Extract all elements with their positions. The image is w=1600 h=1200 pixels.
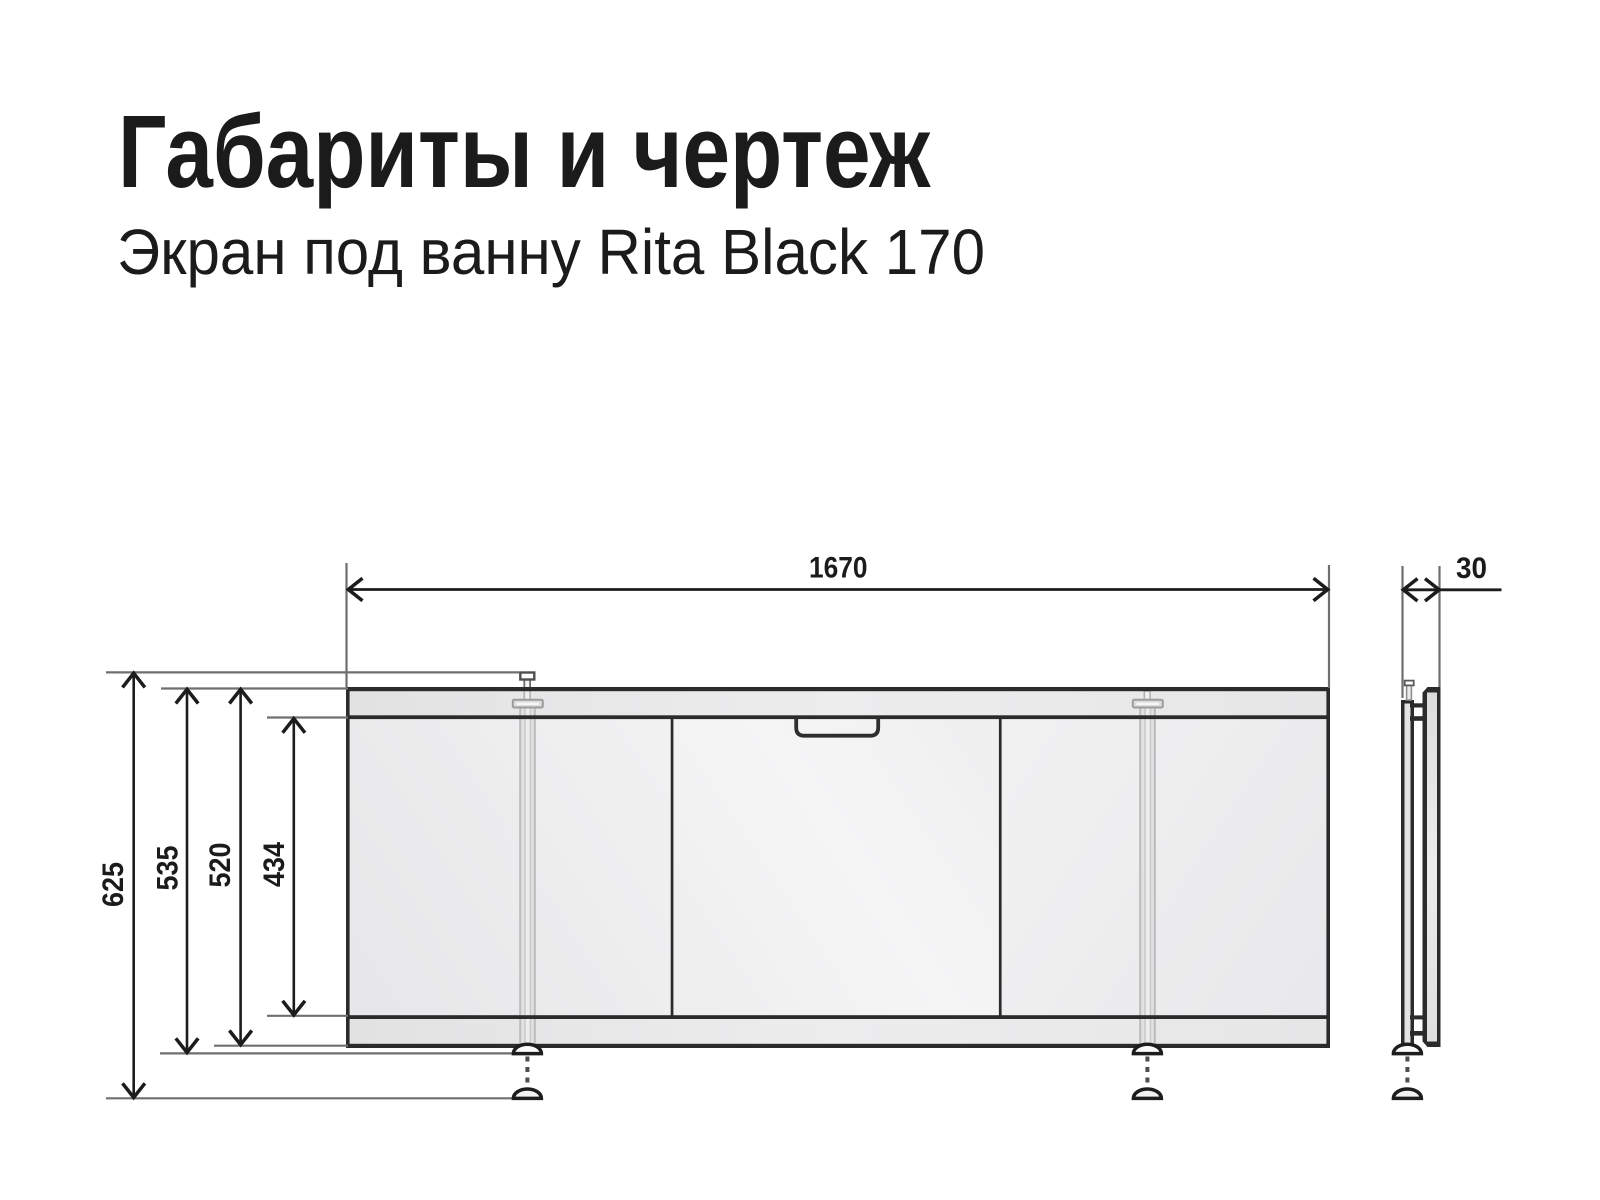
svg-text:434: 434 — [258, 842, 291, 887]
svg-text:625: 625 — [97, 862, 130, 907]
svg-text:Экран под ванну Rita Black 170: Экран под ванну Rita Black 170 — [117, 216, 985, 288]
svg-text:520: 520 — [204, 843, 237, 888]
svg-text:1670: 1670 — [809, 552, 868, 585]
svg-text:30: 30 — [1456, 552, 1487, 585]
svg-text:Габариты и чертеж: Габариты и чертеж — [118, 94, 931, 209]
svg-text:535: 535 — [152, 846, 185, 891]
